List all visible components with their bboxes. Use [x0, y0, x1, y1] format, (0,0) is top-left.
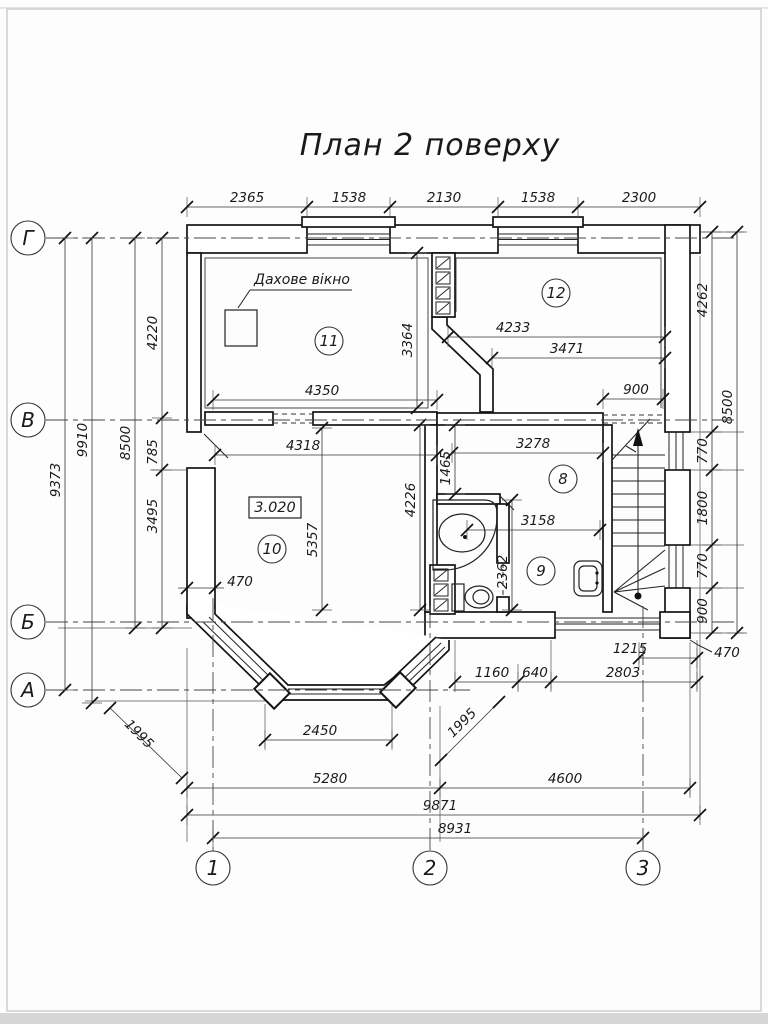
dimension-label: 1538 — [521, 190, 555, 206]
dimension-label: 770 — [695, 438, 711, 464]
dimension-label: 3364 — [400, 323, 416, 357]
east-wall — [665, 225, 690, 432]
dimension-label: 9373 — [48, 463, 64, 497]
stair-direction-arrow — [633, 428, 643, 446]
dimension-label: 9910 — [75, 423, 91, 457]
room-number: 12 — [546, 284, 565, 302]
dimension-label: 2803 — [606, 665, 640, 681]
axis-label: Б — [21, 610, 35, 634]
dimension-label: 640 — [522, 665, 548, 681]
dimension-label: 2130 — [427, 190, 461, 206]
partition-row-v — [313, 412, 437, 425]
dimension-label: 3158 — [521, 513, 555, 529]
dimension-label: 4600 — [548, 771, 582, 787]
dimension-label: 1215 — [613, 641, 647, 657]
dim-tick — [493, 696, 505, 708]
dimension-label: 4233 — [496, 320, 530, 336]
drawing-title: План 2 поверху — [300, 128, 561, 163]
bathtub — [433, 500, 497, 570]
dimension-label: 1995 — [444, 705, 480, 741]
floor-elevation-value: 3.020 — [254, 500, 296, 516]
axis-label: 2 — [424, 856, 437, 880]
south-wall — [660, 612, 690, 638]
dimension-label: 470 — [714, 645, 740, 661]
dimension-label: 8500 — [720, 390, 736, 424]
west-wall — [187, 253, 201, 432]
dimension-label: 1800 — [695, 491, 711, 525]
stair-cut-line — [612, 419, 650, 460]
dimension-label: 9871 — [423, 798, 457, 814]
stair-start-dot — [635, 593, 642, 600]
floor-elevation-mark: 3.020 — [249, 497, 301, 518]
roof-window-label: Дахове вікно — [253, 272, 350, 288]
north-window-bay — [493, 217, 583, 227]
axis-label: В — [21, 408, 35, 432]
axis-label: А — [19, 678, 35, 702]
partition-bath-room9 — [497, 504, 509, 563]
dimension-label: 3278 — [516, 436, 550, 452]
dimension-label: 3495 — [145, 499, 161, 533]
floor-plan-svg: План 2 поверху — [0, 0, 768, 1024]
dimension-label: 1160 — [475, 665, 509, 681]
dimension-label: 900 — [623, 382, 649, 398]
drawing-sheet: План 2 поверху — [0, 0, 768, 1024]
scan-bottom-edge — [0, 1013, 768, 1024]
dimension-label: 5357 — [305, 522, 321, 557]
chimney-flue-upper — [432, 253, 455, 317]
axis-label: 1 — [207, 856, 220, 880]
dimension-label: 4262 — [695, 283, 711, 317]
dimensions-and-axes: 2365153821301538230043504318423334719003… — [11, 190, 747, 885]
dimension-label: 785 — [145, 439, 161, 465]
axis-label: 3 — [637, 856, 650, 880]
chimney-flue-lower — [430, 565, 455, 614]
dimension-label: 4226 — [403, 483, 419, 517]
west-wall-thick — [187, 468, 215, 618]
partition-bathroom — [437, 494, 500, 504]
dim-tick — [435, 754, 447, 766]
dimension-label: 900 — [695, 598, 711, 624]
dimension-label: 1538 — [332, 190, 366, 206]
north-wall — [187, 225, 307, 253]
dimension-label: 4318 — [286, 438, 320, 454]
dimension-label: 5280 — [313, 771, 347, 787]
washbasin — [574, 561, 602, 596]
dimension-label: 1465 — [438, 451, 454, 485]
dimension-label: 2450 — [303, 723, 337, 739]
axis-label: Г — [22, 226, 35, 250]
room-number: 10 — [262, 540, 281, 558]
dimension-label: 4220 — [145, 316, 161, 350]
dimension-label: 2362 — [495, 555, 511, 589]
dimension-label: 2300 — [622, 190, 656, 206]
dimension-label: 470 — [227, 574, 253, 590]
room-number: 11 — [319, 332, 338, 350]
bay-window — [187, 605, 449, 709]
north-wall — [390, 225, 498, 253]
stair-wall — [603, 425, 612, 612]
partition-row-v — [205, 412, 273, 425]
dimension-label: 1995 — [121, 716, 157, 752]
dimension-label: 4350 — [305, 383, 339, 399]
dimension-label: 3471 — [550, 341, 584, 357]
room-number: 9 — [536, 562, 546, 580]
partition-row-v — [437, 413, 603, 425]
staircase — [612, 419, 665, 610]
dimension-label: 2365 — [230, 190, 264, 206]
north-window-bay — [302, 217, 395, 227]
diagonal-wall — [432, 317, 493, 412]
dimension-label: 8931 — [438, 821, 472, 837]
east-wall — [665, 470, 690, 545]
room-number: 8 — [558, 470, 568, 488]
roof-window-symbol — [225, 310, 257, 346]
toilet — [452, 584, 493, 611]
south-wall — [425, 612, 555, 638]
dimension-label: 8500 — [118, 426, 134, 460]
dimension-label: 770 — [695, 553, 711, 579]
